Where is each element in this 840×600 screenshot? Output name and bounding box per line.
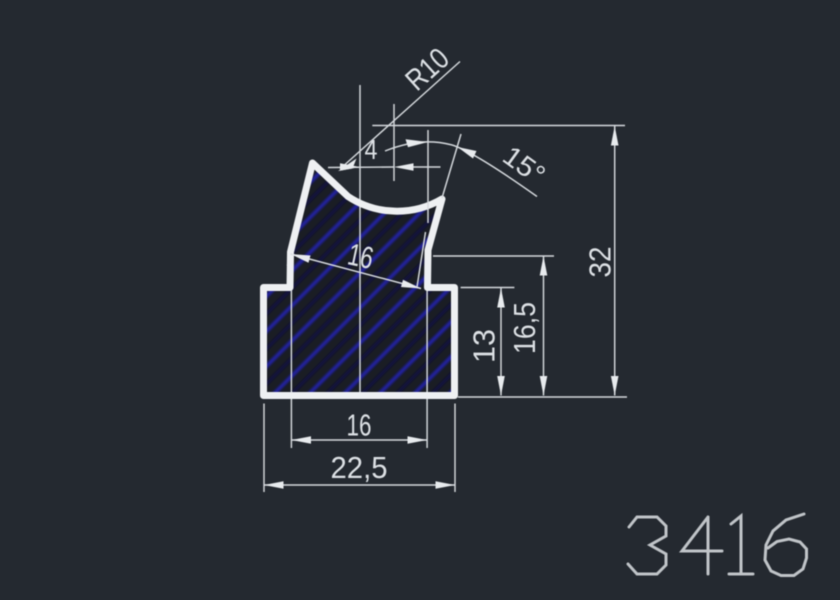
svg-text:32: 32 — [583, 247, 618, 278]
svg-text:16: 16 — [347, 408, 372, 443]
svg-text:22,5: 22,5 — [331, 450, 388, 485]
svg-text:16,5: 16,5 — [507, 302, 542, 354]
svg-text:15°: 15° — [497, 140, 551, 191]
svg-text:R10: R10 — [400, 42, 456, 97]
svg-text:13: 13 — [467, 329, 502, 363]
svg-text:4: 4 — [365, 134, 378, 165]
